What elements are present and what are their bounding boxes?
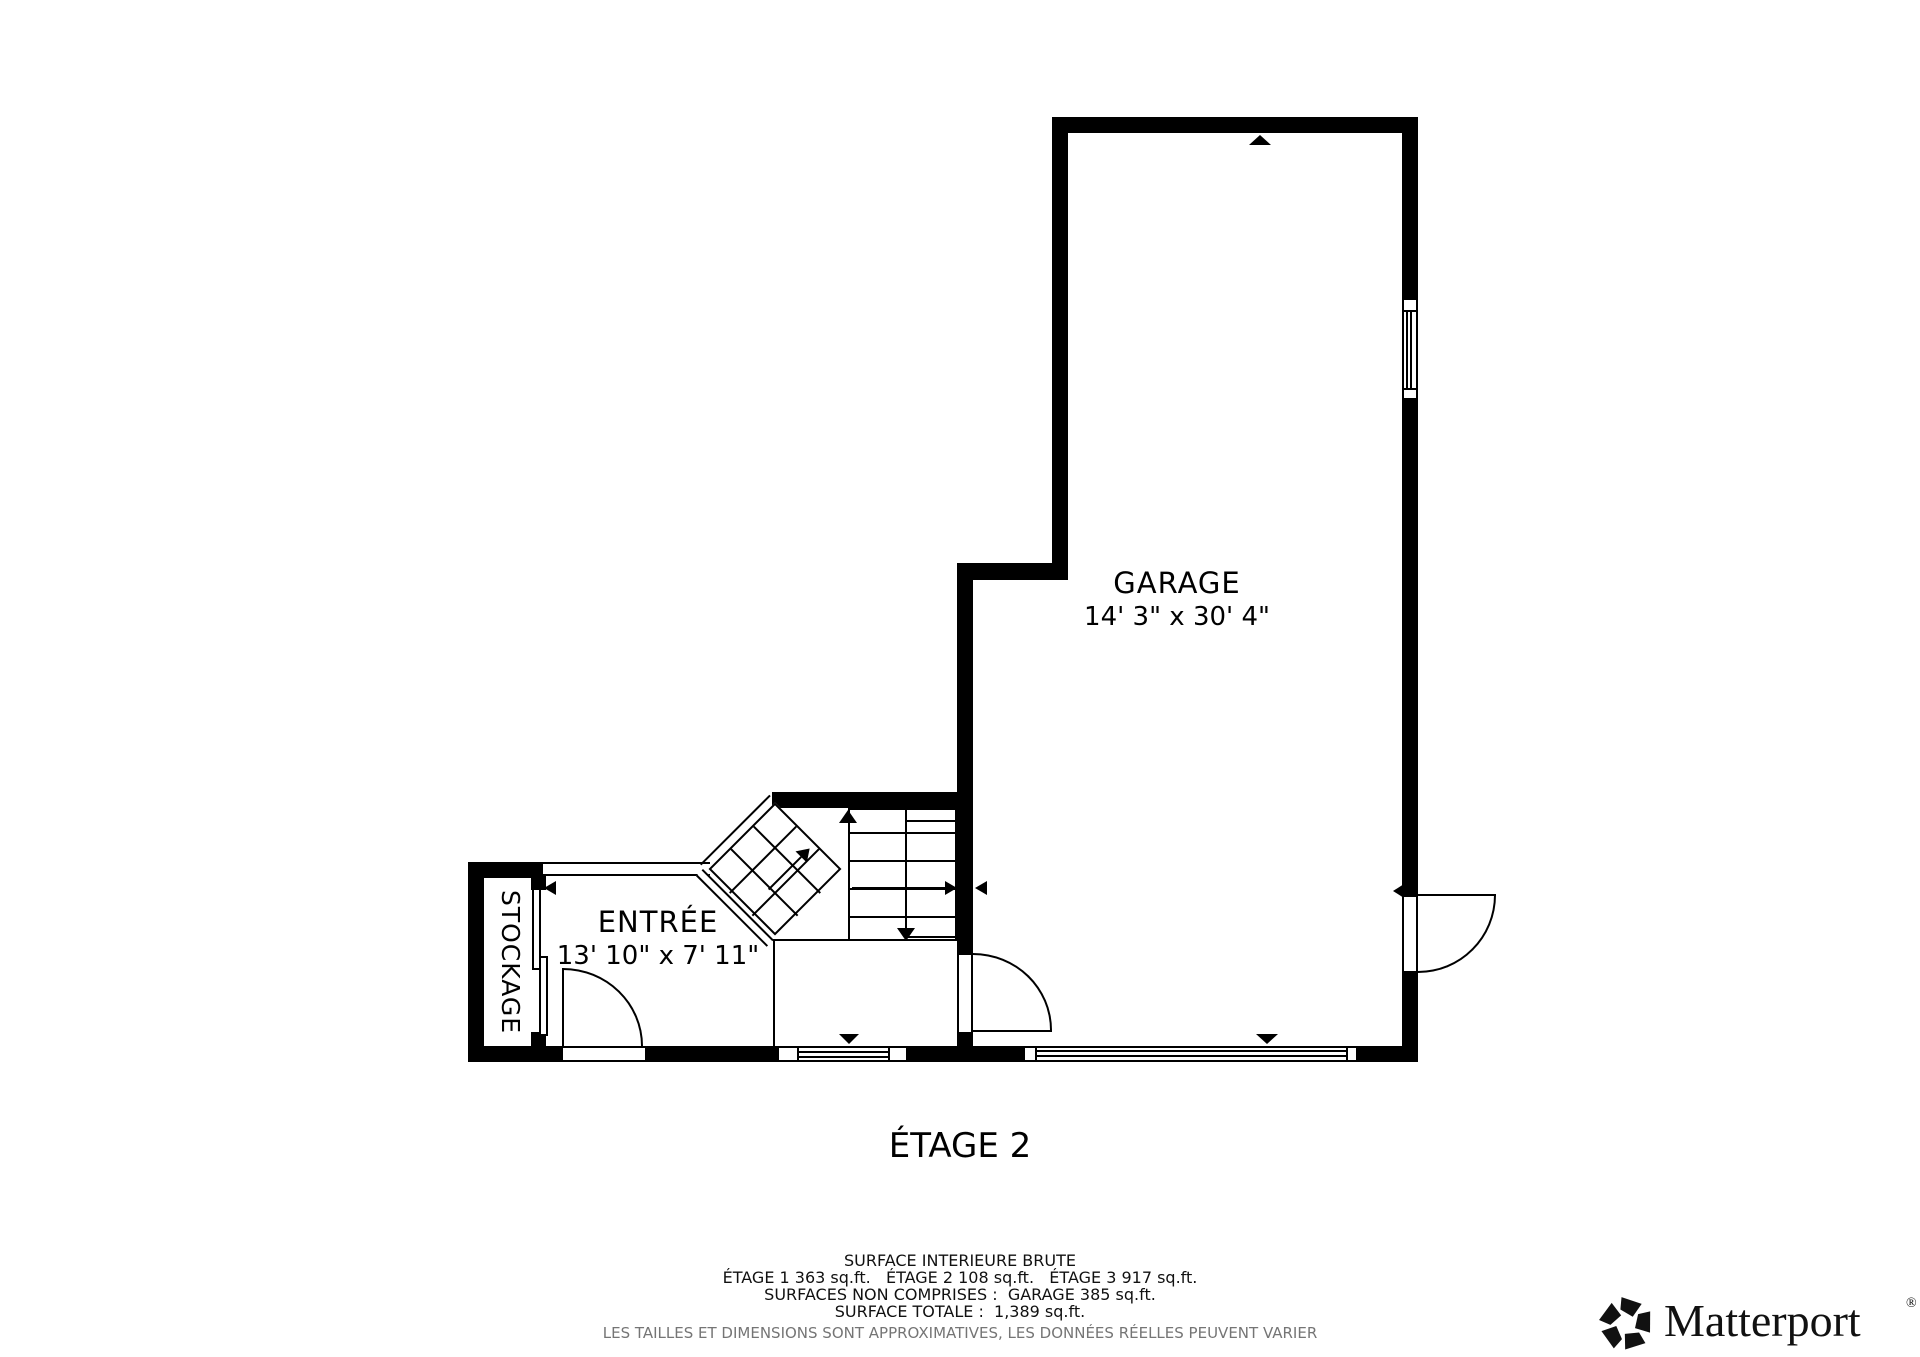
garage-right-door-opening	[1402, 895, 1418, 973]
bottom-wall-a	[468, 1046, 563, 1062]
garage-wall-right-mid	[1402, 400, 1418, 895]
garage-wall-top	[1052, 117, 1418, 133]
bottom-window-glass	[799, 1056, 888, 1058]
stair-wall-top	[772, 792, 973, 808]
hall-garage-door-opening	[957, 955, 973, 1032]
bottom-window-cap	[797, 1048, 799, 1060]
garage-top-arrow	[1249, 135, 1271, 145]
garage-dimensions: 14' 3" x 30' 4"	[1027, 602, 1327, 632]
entree-door-opening	[563, 1046, 645, 1062]
bottom-wall-c	[908, 1046, 1023, 1062]
hall-garage-door-leaf	[973, 1030, 1052, 1032]
bottom-wall-b	[645, 1046, 777, 1062]
footer-disclaimer: LES TAILLES ET DIMENSIONS SONT APPROXIMA…	[460, 1324, 1460, 1342]
garage-exit-arrow	[1256, 1034, 1278, 1044]
entree-door-swing	[563, 968, 643, 1046]
stair-tread	[848, 916, 957, 918]
winder-arrow-line	[768, 856, 802, 890]
matterport-wordmark: Matterport	[1664, 1294, 1861, 1347]
stair-run	[848, 808, 957, 941]
matterport-logo: Matterport ®	[1598, 1294, 1918, 1354]
bottom-window-glass	[799, 1051, 888, 1053]
garage-label: GARAGE	[1027, 566, 1327, 600]
stair-tread	[848, 860, 957, 862]
garage-wall-left-upper	[1052, 117, 1068, 580]
stockage-door-arrow	[544, 881, 556, 895]
stair-cross-arrow-line	[852, 887, 945, 889]
garage-side-arrowhead	[975, 881, 987, 895]
footer-total-area: SURFACE TOTALE : 1,389 sq.ft.	[460, 1302, 1460, 1321]
entree-exit-arrow	[839, 1034, 859, 1044]
garage-right-window-glass	[1406, 312, 1408, 388]
matterport-mark-icon	[1598, 1296, 1654, 1352]
entree-label: ENTRÉE	[508, 905, 808, 939]
stair-cross-arrowhead-right	[945, 881, 957, 895]
garage-wall-right-upper	[1402, 117, 1418, 298]
stair-tread	[905, 820, 957, 822]
stair-tread	[848, 832, 957, 834]
floor-title: ÉTAGE 2	[760, 1126, 1160, 1166]
stair-run-divider	[905, 808, 907, 941]
entree-dimensions: 13' 10" x 7' 11"	[508, 941, 808, 971]
garage-right-door-arrow	[1393, 884, 1404, 898]
bottom-window-cap	[888, 1048, 890, 1060]
garage-right-window-sill	[1402, 388, 1418, 390]
stair-up-arrow	[839, 810, 857, 823]
garage-right-door-swing	[1418, 895, 1496, 973]
garage-door-cap	[1346, 1048, 1348, 1060]
stair-down-arrow	[897, 928, 915, 941]
entree-top-partition	[543, 862, 710, 876]
stockage-wall-left	[468, 862, 484, 1062]
bottom-wall-d	[1358, 1046, 1418, 1062]
floorplan-page: GARAGE 14' 3" x 30' 4" ENTRÉE 13' 10" x …	[0, 0, 1920, 1357]
garage-door-panel	[1037, 1050, 1346, 1057]
stockage-label: STOCKAGE	[493, 877, 525, 1047]
matterport-registered-mark: ®	[1906, 1296, 1917, 1312]
garage-right-window-glass	[1410, 312, 1412, 388]
hall-garage-door-swing	[973, 953, 1052, 1030]
